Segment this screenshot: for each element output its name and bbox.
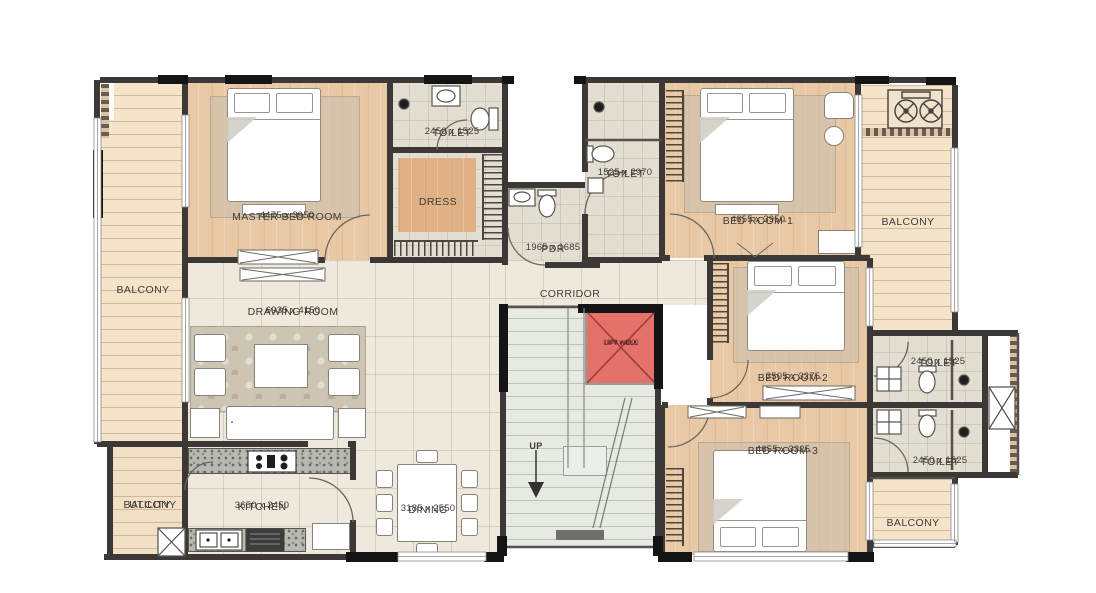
- pillow: [749, 93, 786, 113]
- room-dims: 3185 x 2550: [401, 503, 456, 516]
- kitchen-counter-bottom: [188, 528, 306, 552]
- pillow: [798, 266, 836, 286]
- blanket-fold: [227, 117, 257, 143]
- room-dims: 2450 x 1525: [911, 356, 966, 369]
- pillow: [720, 527, 757, 547]
- dining-chair: [461, 518, 478, 536]
- kitchen-counter-top: [188, 448, 352, 474]
- room-dims: 2450 x 1525: [913, 455, 968, 468]
- pillow: [234, 93, 271, 113]
- room-dims: 3505 x 3275: [766, 371, 821, 384]
- bed-bedroom-1: [700, 88, 794, 202]
- armchair: [194, 368, 226, 396]
- room-name: BALCONY: [887, 516, 940, 530]
- balcony-ledge-hatch: [858, 128, 955, 136]
- room-dims: 1800 x 1800: [603, 340, 638, 347]
- wardrobe-bedroom-1: [666, 90, 684, 182]
- balcony-left-floor: [100, 82, 185, 444]
- wardrobe-dress-right: [482, 154, 502, 240]
- room-dims: 4655 x 3950: [731, 214, 786, 227]
- dining-chair: [376, 494, 393, 512]
- pillow: [276, 93, 313, 113]
- floor-plan: BALCONY UTILITY BALCONY MASTER BED ROOM …: [0, 0, 1096, 593]
- dining-chair: [416, 543, 438, 556]
- room-dims: 1525 x 2970: [598, 167, 653, 180]
- blanket-fold: [700, 117, 730, 143]
- dining-chair: [376, 518, 393, 536]
- side-table: [190, 408, 220, 438]
- armchair-bedroom-1: [824, 92, 854, 119]
- wardrobe-bedroom-3: [666, 468, 684, 546]
- pillow: [707, 93, 744, 113]
- room-dims: 3650 x 2450: [235, 500, 290, 513]
- pillow: [754, 266, 792, 286]
- balcony-right-bottom-floor: [870, 478, 955, 545]
- wardrobe-bedroom-2: [713, 263, 729, 343]
- room-name: UP: [529, 440, 542, 452]
- bed-master: [227, 88, 321, 202]
- dining-chair: [461, 470, 478, 488]
- armchair: [328, 334, 360, 362]
- dining-chair: [461, 494, 478, 512]
- corridor-floor: [505, 260, 710, 305]
- shaft-edge-hatch: [1010, 333, 1018, 475]
- bed-bedroom-3: [713, 450, 807, 552]
- blanket-fold: [747, 290, 777, 316]
- blanket-fold: [713, 499, 743, 525]
- side-table: [338, 408, 366, 438]
- room-dims: 6935 x 4150: [266, 305, 321, 318]
- pillow: [762, 527, 799, 547]
- balcony-right-top-floor: [858, 85, 955, 333]
- room-dims: 2450 x 1525: [425, 126, 480, 139]
- room-name: BALCONY: [124, 498, 177, 512]
- bed-bedroom-2: [747, 261, 845, 351]
- stool-bedroom-1: [824, 126, 844, 146]
- room-name: DRESS: [419, 195, 457, 209]
- dining-chair: [376, 470, 393, 488]
- room-dims: 4655 x 3325: [756, 444, 811, 457]
- coffee-table: [254, 344, 308, 388]
- armchair: [194, 334, 226, 362]
- sofa-cushion: [231, 421, 233, 423]
- stair-landing: [563, 446, 607, 476]
- room-name: BALCONY: [882, 215, 935, 229]
- wardrobe-dress-bottom: [394, 240, 478, 256]
- room-name: BALCONY: [117, 283, 170, 297]
- room-name: CORRIDOR: [540, 287, 600, 301]
- balcony-corner-hatch: [101, 84, 109, 138]
- room-dims: 1965 x 1685: [526, 242, 581, 255]
- armchair: [328, 368, 360, 396]
- sofa: [226, 406, 334, 440]
- fridge: [312, 523, 350, 550]
- desk-bedroom-1: [818, 230, 858, 254]
- dining-chair: [416, 450, 438, 463]
- room-dims: 4475 x 3950: [260, 210, 315, 223]
